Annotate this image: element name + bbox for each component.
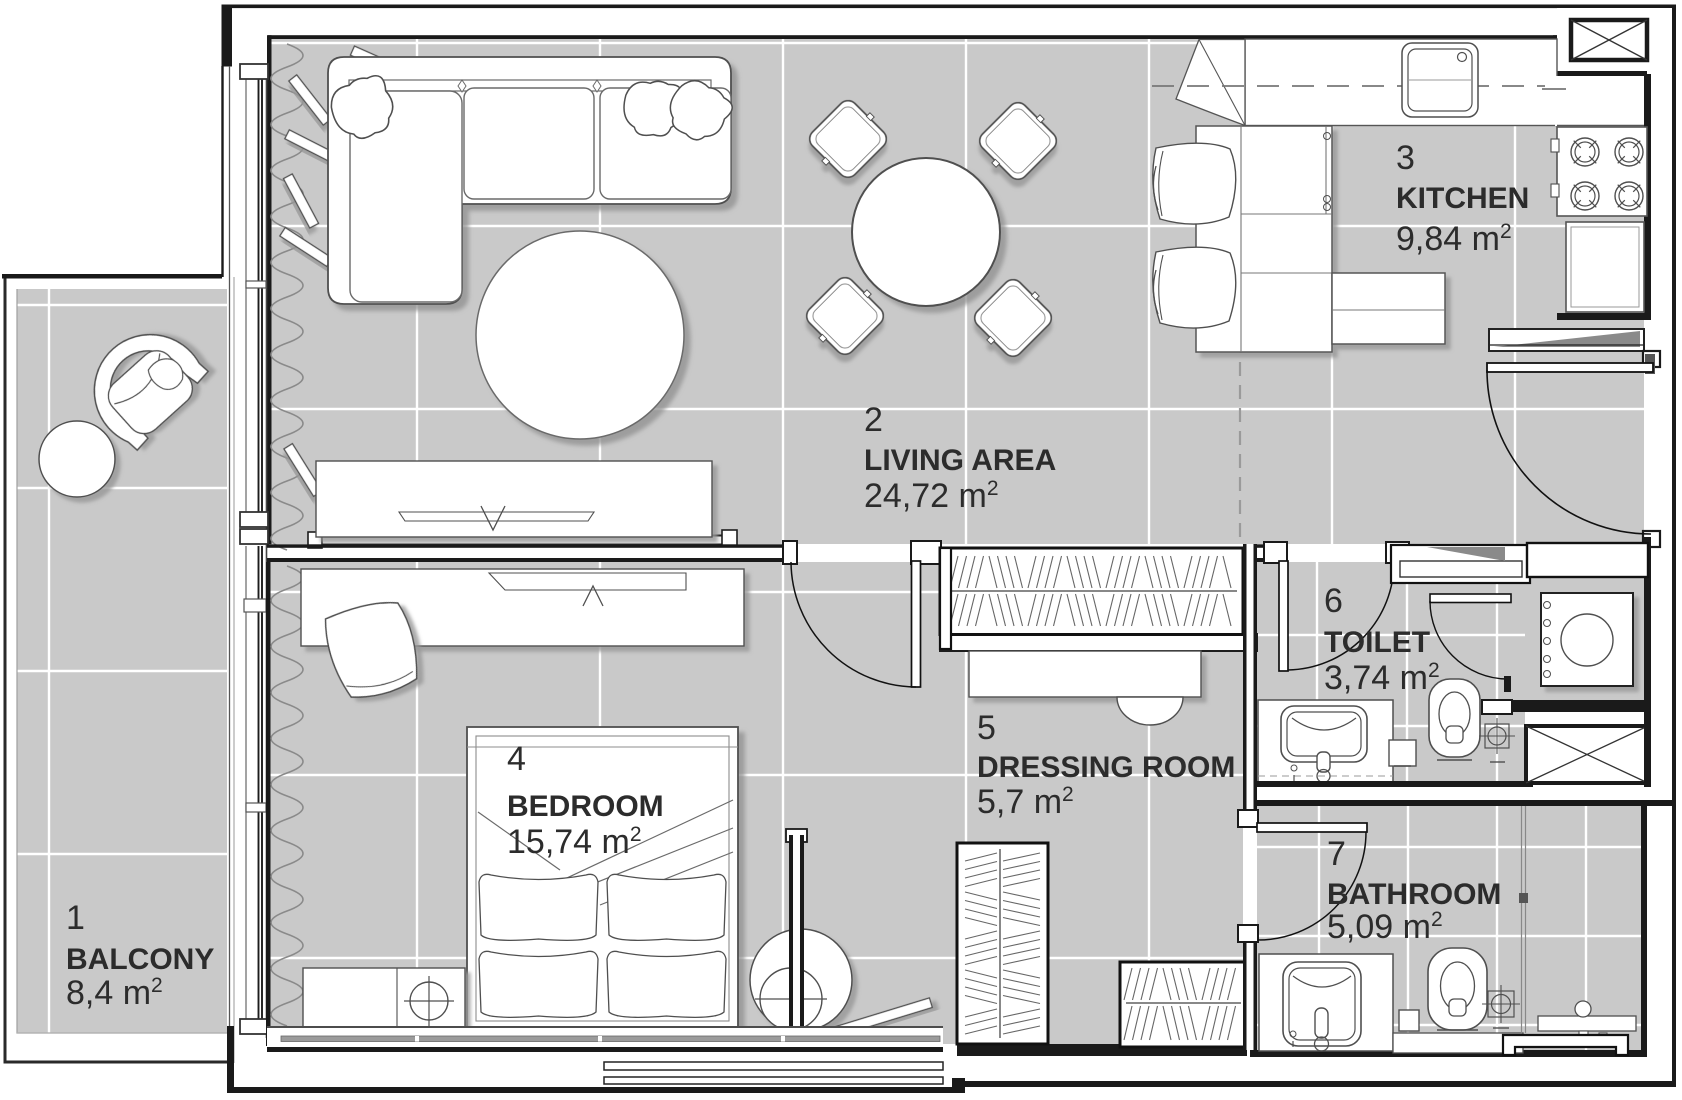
svg-text:3: 3 [1396,139,1415,177]
svg-text:4: 4 [507,740,526,778]
svg-text:BALCONY: BALCONY [66,943,214,976]
svg-text:LIVING AREA: LIVING AREA [864,444,1056,477]
svg-text:6: 6 [1324,582,1343,620]
svg-text:TOILET: TOILET [1324,626,1430,659]
svg-text:7: 7 [1327,835,1346,873]
svg-text:BATHROOM: BATHROOM [1327,878,1501,911]
svg-text:KITCHEN: KITCHEN [1396,182,1529,215]
svg-text:5,09 m2: 5,09 m2 [1327,908,1443,946]
svg-text:9,84 m2: 9,84 m2 [1396,220,1512,258]
svg-text:15,74 m2: 15,74 m2 [507,823,642,861]
svg-text:8,4 m2: 8,4 m2 [66,974,163,1012]
svg-text:5: 5 [977,709,996,747]
svg-text:1: 1 [66,899,85,937]
svg-text:2: 2 [864,401,883,439]
svg-text:3,74 m2: 3,74 m2 [1324,659,1440,697]
svg-text:5,7 m2: 5,7 m2 [977,783,1074,821]
svg-text:BEDROOM: BEDROOM [507,790,664,823]
svg-text:24,72 m2: 24,72 m2 [864,477,999,515]
svg-text:DRESSING ROOM: DRESSING ROOM [977,751,1235,784]
